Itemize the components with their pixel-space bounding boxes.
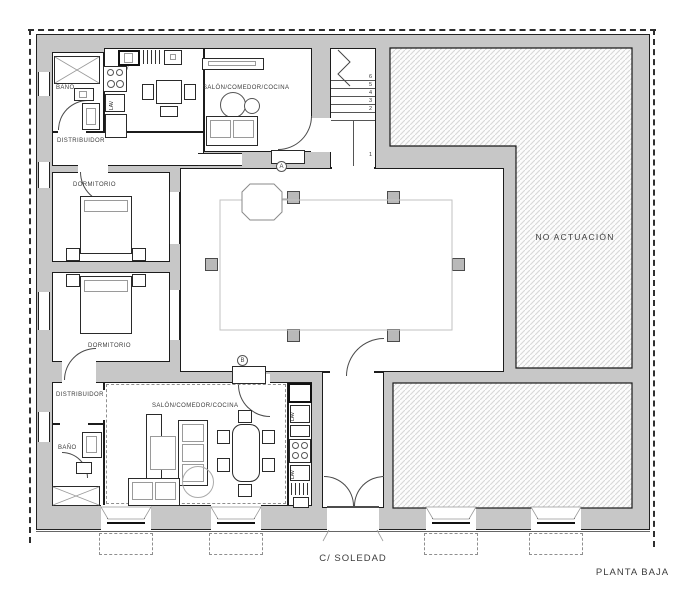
washbasin-upper-bowl: [86, 108, 96, 125]
site-boundary-right: [653, 29, 655, 547]
round-table-upper: [220, 92, 246, 118]
window-lower-bedroom-left: [38, 292, 50, 330]
round-chair-upper: [244, 98, 260, 114]
section-marker-b: B: [237, 355, 248, 366]
shower-upper: [54, 56, 100, 84]
rug-square-lower: [150, 436, 176, 470]
rug-circle-lower: [182, 466, 214, 498]
column-top-left: [287, 191, 300, 204]
toilet-upper-seat: [79, 91, 87, 98]
window-lower-bath-left: [38, 412, 50, 442]
tv-upper: [208, 61, 256, 66]
label-lower-bedroom: DORMITORIO: [88, 343, 131, 349]
stair-number-2: 2: [369, 106, 372, 112]
facade-window-1: [107, 517, 145, 524]
dining-chair-top: [238, 410, 252, 423]
facade-window-2: [217, 517, 255, 524]
hob-lower-burner-4: [301, 452, 308, 459]
window-upper-bedroom-courtyard: [169, 192, 180, 244]
nightstand-lower-right: [132, 274, 146, 287]
awning-1: [99, 533, 153, 555]
dining-chair-right-2: [262, 458, 275, 472]
bed-upper-pillow: [84, 200, 128, 212]
label-upper-bath: BAÑO: [56, 85, 75, 91]
stair-number-4: 4: [369, 90, 372, 96]
hob-lower-burner-1: [292, 442, 299, 449]
label-upper-living: SALÓN/COMEDOR/COCINA: [203, 85, 289, 91]
chair-upper-left: [142, 84, 154, 100]
hob-upper-burner-2: [116, 80, 124, 88]
bench-marker-b: [232, 366, 266, 384]
nightstand-lower-left: [66, 274, 80, 287]
stair-number-3: 3: [369, 98, 372, 104]
radiator-lower: [291, 483, 311, 495]
opening-lower-bath-door: [60, 420, 88, 428]
counter-lower: [290, 425, 310, 437]
stair-number-6: 6: [369, 74, 372, 80]
label-plan-title: PLANTA BAJA: [585, 567, 680, 578]
stair-flight-divider: [353, 120, 354, 166]
washer-upper-drum: [124, 53, 133, 63]
section-marker-b-letter: B: [240, 358, 244, 364]
chair-upper-right: [184, 84, 196, 100]
dining-table-lower: [232, 424, 260, 482]
cabinet-upper: [105, 114, 127, 138]
room-lower-hall: [52, 382, 104, 424]
label-no-action-zone: NO ACTUACIÓN: [515, 232, 635, 242]
stair-step-line: [331, 88, 375, 89]
window-marker-a: [271, 150, 305, 164]
stair-step-line: [331, 112, 375, 113]
nightstand-upper-left: [66, 248, 80, 261]
hob-upper-burner-1: [107, 80, 115, 88]
table-upper: [156, 80, 182, 104]
sofa-upper-cushion-2: [233, 120, 254, 138]
hob-lower-burner-2: [301, 442, 308, 449]
window-upper-living-courtyard: [198, 153, 242, 166]
appliance-upper-dot: [170, 54, 176, 60]
opening-upper-living-door: [311, 118, 331, 152]
awning-2: [209, 533, 263, 555]
label-upper-bedroom: DORMITORIO: [73, 182, 116, 188]
sink-upper-bowl-1: [107, 69, 114, 76]
awning-3: [424, 533, 478, 555]
fridge-lower: [288, 383, 312, 403]
label-street: C/ SOLEDAD: [308, 553, 398, 564]
hob-lower-burner-3: [292, 452, 299, 459]
column-bottom-left: [287, 329, 300, 342]
section-marker-a-letter: A: [279, 164, 283, 170]
radiator-upper: [143, 50, 161, 64]
column-mid-right: [452, 258, 465, 271]
counter-upper-label: LAV: [109, 101, 115, 110]
sofa-lower-cushion-2: [182, 444, 204, 462]
label-lower-bath: BAÑO: [58, 445, 77, 451]
bed-lower-pillow: [84, 280, 128, 292]
section-marker-a: A: [276, 161, 287, 172]
window-lower-bedroom-courtyard: [169, 290, 180, 340]
label-lower-living: SALÓN/COMEDOR/COCINA: [152, 403, 238, 409]
stair-step-line: [331, 104, 375, 105]
floor-plan-canvas: LAV LAV A B 6 5 4 3 2 1: [0, 0, 690, 599]
loveseat-cushion-2: [155, 482, 176, 500]
stair-step-line: [331, 96, 375, 97]
column-bottom-right: [387, 329, 400, 342]
cabinet-lower-label: LAV: [290, 470, 296, 479]
stair-number-1: 1: [369, 152, 372, 158]
street-facade-line: [36, 531, 650, 532]
sofa-lower-cushion-1: [182, 424, 204, 442]
washbasin-lower-bowl: [86, 436, 97, 453]
label-upper-hall: DISTRIBUIDOR: [57, 138, 105, 144]
portal-opening: [327, 505, 379, 530]
stair-step-line: [331, 80, 375, 81]
site-boundary-left: [29, 29, 31, 543]
column-top-right: [387, 191, 400, 204]
awning-4: [529, 533, 583, 555]
sofa-upper-cushion-1: [210, 120, 231, 138]
dining-chair-right-1: [262, 430, 275, 444]
label-lower-hall: DISTRIBUIDOR: [56, 392, 104, 398]
facade-window-4: [537, 517, 575, 524]
facade-window-3: [432, 517, 470, 524]
stair-number-5: 5: [369, 82, 372, 88]
chair-upper-bottom: [160, 106, 178, 117]
counter-upper: [105, 94, 125, 112]
window-upper-bedroom-left: [38, 162, 50, 188]
window-upper-bath: [38, 72, 50, 96]
dining-chair-left-1: [217, 430, 230, 444]
site-boundary-top: [28, 29, 656, 31]
dining-chair-bottom: [238, 484, 252, 497]
nightstand-upper-right: [132, 248, 146, 261]
dining-chair-left-2: [217, 458, 230, 472]
toilet-lower: [76, 462, 92, 474]
sink-upper-bowl-2: [116, 69, 123, 76]
loveseat-cushion-1: [132, 482, 153, 500]
washer-lower-label: LAV: [290, 412, 296, 421]
shower-lower: [52, 486, 100, 506]
appliance-lower: [293, 497, 309, 508]
column-mid-left: [205, 258, 218, 271]
